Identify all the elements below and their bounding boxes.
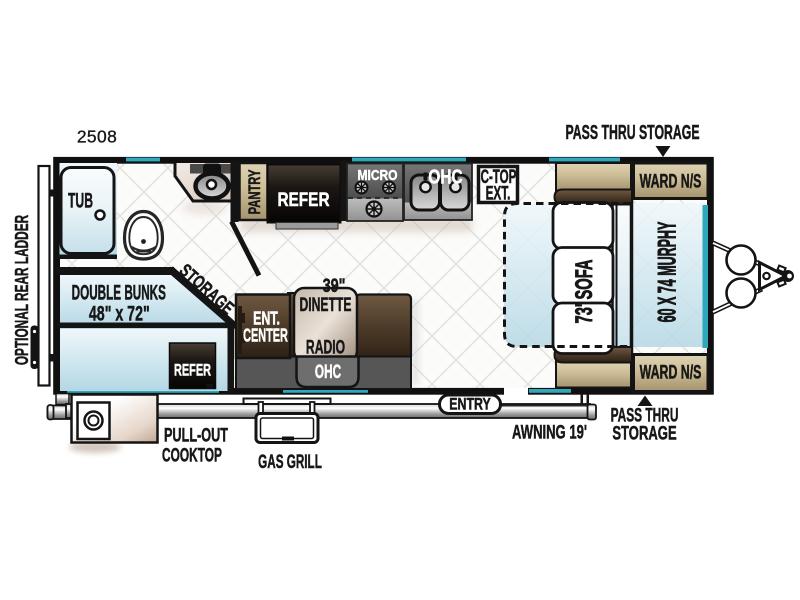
svg-text:REFER: REFER (277, 188, 330, 210)
svg-text:WARD N/S: WARD N/S (640, 362, 702, 383)
svg-text:2508: 2508 (77, 126, 117, 146)
svg-text:ENTRY: ENTRY (449, 396, 491, 414)
svg-text:AWNING 19': AWNING 19' (512, 421, 587, 443)
svg-text:REFER: REFER (174, 360, 211, 379)
svg-text:OHC: OHC (315, 362, 341, 382)
svg-text:48" x 72": 48" x 72" (89, 302, 150, 326)
svg-text:STORAGE: STORAGE (612, 422, 676, 444)
svg-text:PANTRY: PANTRY (245, 169, 264, 214)
svg-text:WARD N/S: WARD N/S (640, 171, 702, 192)
svg-text:MICRO: MICRO (357, 167, 397, 183)
svg-text:DINETTE: DINETTE (300, 296, 352, 316)
svg-text:73' SOFA: 73' SOFA (571, 259, 598, 323)
svg-text:COOKTOP: COOKTOP (162, 445, 222, 467)
svg-text:39": 39" (323, 274, 346, 297)
svg-text:60 X 74 MURPHY: 60 X 74 MURPHY (654, 222, 682, 323)
svg-text:OHC: OHC (428, 166, 462, 188)
svg-text:PASS THRU STORAGE: PASS THRU STORAGE (565, 121, 699, 144)
svg-text:PULL-OUT: PULL-OUT (164, 425, 228, 446)
svg-text:GAS GRILL: GAS GRILL (258, 451, 322, 473)
svg-text:OPTIONAL REAR LADDER: OPTIONAL REAR LADDER (12, 215, 32, 365)
svg-text:RADIO: RADIO (306, 338, 345, 358)
svg-text:EXT.: EXT. (486, 184, 511, 204)
svg-text:TUB: TUB (68, 188, 93, 212)
svg-text:CENTER: CENTER (243, 326, 288, 347)
